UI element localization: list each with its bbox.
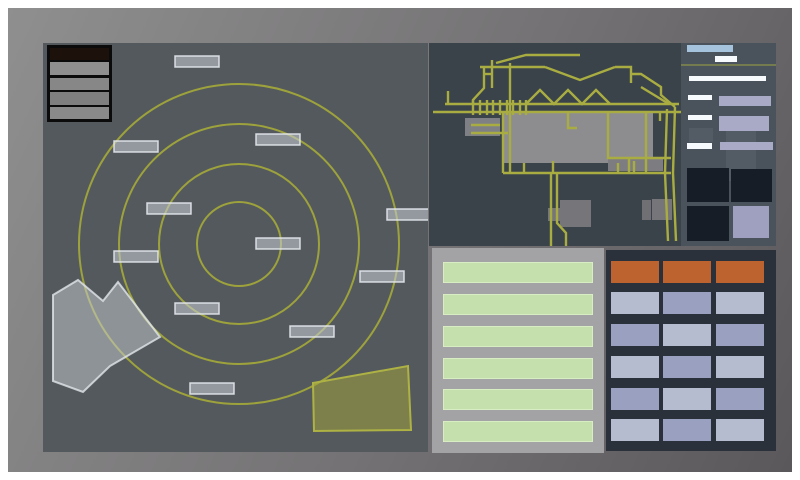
olive-zone-shape: [313, 366, 411, 431]
status-list-item[interactable]: [443, 389, 593, 410]
road-path: [641, 87, 669, 104]
display-tile[interactable]: [731, 169, 772, 202]
panel-title-bar: [687, 45, 733, 52]
field-value-button[interactable]: [719, 96, 771, 106]
display-tile[interactable]: [687, 206, 729, 241]
road-path: [665, 109, 668, 241]
map-building: [652, 199, 672, 220]
field-value-button[interactable]: [719, 116, 769, 131]
road-path: [615, 67, 631, 83]
field-label: [688, 95, 712, 100]
keypad-button[interactable]: [716, 419, 764, 441]
map-building: [503, 113, 653, 163]
keypad-panel: [606, 250, 776, 451]
status-list-item[interactable]: [443, 326, 593, 347]
legend-bar: [50, 92, 109, 105]
status-list-item[interactable]: [443, 262, 593, 283]
radar-track-label[interactable]: [360, 271, 404, 282]
keypad-button[interactable]: [716, 388, 764, 410]
display-tile-active[interactable]: [733, 206, 769, 238]
display-tile[interactable]: [687, 168, 729, 202]
console-screen: [0, 0, 800, 480]
keypad-button[interactable]: [611, 356, 659, 378]
field-label: [687, 143, 712, 149]
road-path: [631, 74, 675, 107]
legend-title-row: [50, 48, 109, 60]
keypad-button[interactable]: [663, 356, 711, 378]
keypad-button[interactable]: [663, 388, 711, 410]
keypad-button[interactable]: [611, 292, 659, 314]
radar-track-label[interactable]: [147, 203, 191, 214]
ghost-highlight: [689, 128, 713, 142]
status-list-item[interactable]: [443, 421, 593, 442]
legend-bar: [50, 78, 109, 90]
keypad-button[interactable]: [663, 324, 711, 346]
field-value-button[interactable]: [720, 142, 773, 150]
road-path: [526, 90, 610, 104]
status-list-item[interactable]: [443, 358, 593, 379]
radar-track-label[interactable]: [256, 134, 300, 145]
keypad-button[interactable]: [663, 292, 711, 314]
panel-subtitle-chip: [715, 56, 737, 62]
keypad-button[interactable]: [716, 356, 764, 378]
road-overlay-line: [681, 64, 776, 66]
legend-box: [47, 45, 112, 122]
status-list-item[interactable]: [443, 294, 593, 315]
legend-bar: [50, 62, 109, 75]
gray-zone-shape: [53, 280, 160, 392]
radar-track-label[interactable]: [114, 251, 158, 262]
radar-track-label[interactable]: [190, 383, 234, 394]
map-building: [548, 208, 560, 221]
keypad-button[interactable]: [716, 292, 764, 314]
legend-bar: [50, 107, 109, 119]
road-path: [673, 107, 676, 241]
road-path: [473, 67, 484, 104]
map-building: [642, 200, 651, 220]
radar-track-label[interactable]: [114, 141, 158, 152]
keypad-button[interactable]: [716, 261, 764, 283]
radar-track-label[interactable]: [175, 303, 219, 314]
bezel-frame: [8, 8, 792, 472]
radar-track-label[interactable]: [256, 238, 300, 249]
keypad-button[interactable]: [611, 261, 659, 283]
radar-panel: [43, 43, 428, 452]
keypad-button[interactable]: [611, 388, 659, 410]
keypad-button[interactable]: [611, 419, 659, 441]
readout-bar: [689, 76, 766, 81]
road-path: [545, 67, 615, 80]
radar-track-label[interactable]: [387, 209, 428, 220]
radar-track-label[interactable]: [290, 326, 334, 337]
keypad-button[interactable]: [611, 324, 659, 346]
radar-track-label[interactable]: [175, 56, 219, 67]
field-label: [688, 115, 712, 120]
status-list-panel: [432, 248, 604, 453]
keypad-button[interactable]: [663, 419, 711, 441]
road-path: [496, 55, 580, 63]
keypad-button[interactable]: [663, 261, 711, 283]
control-panel: [681, 43, 776, 246]
map-building: [608, 158, 663, 171]
map-building: [560, 200, 591, 227]
keypad-button[interactable]: [716, 324, 764, 346]
